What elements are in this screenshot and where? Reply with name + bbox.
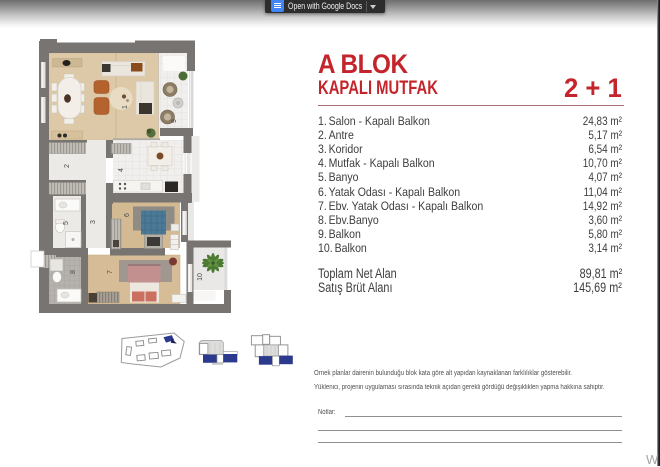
svg-text:9: 9 <box>171 119 178 123</box>
svg-text:6: 6 <box>124 213 131 217</box>
svg-text:8: 8 <box>70 270 77 274</box>
svg-text:4: 4 <box>118 168 125 172</box>
svg-text:3: 3 <box>90 220 97 224</box>
svg-text:2: 2 <box>64 164 71 168</box>
svg-text:7: 7 <box>107 270 114 274</box>
svg-text:1: 1 <box>122 105 129 109</box>
svg-text:5: 5 <box>63 221 70 225</box>
svg-text:10: 10 <box>197 273 204 281</box>
